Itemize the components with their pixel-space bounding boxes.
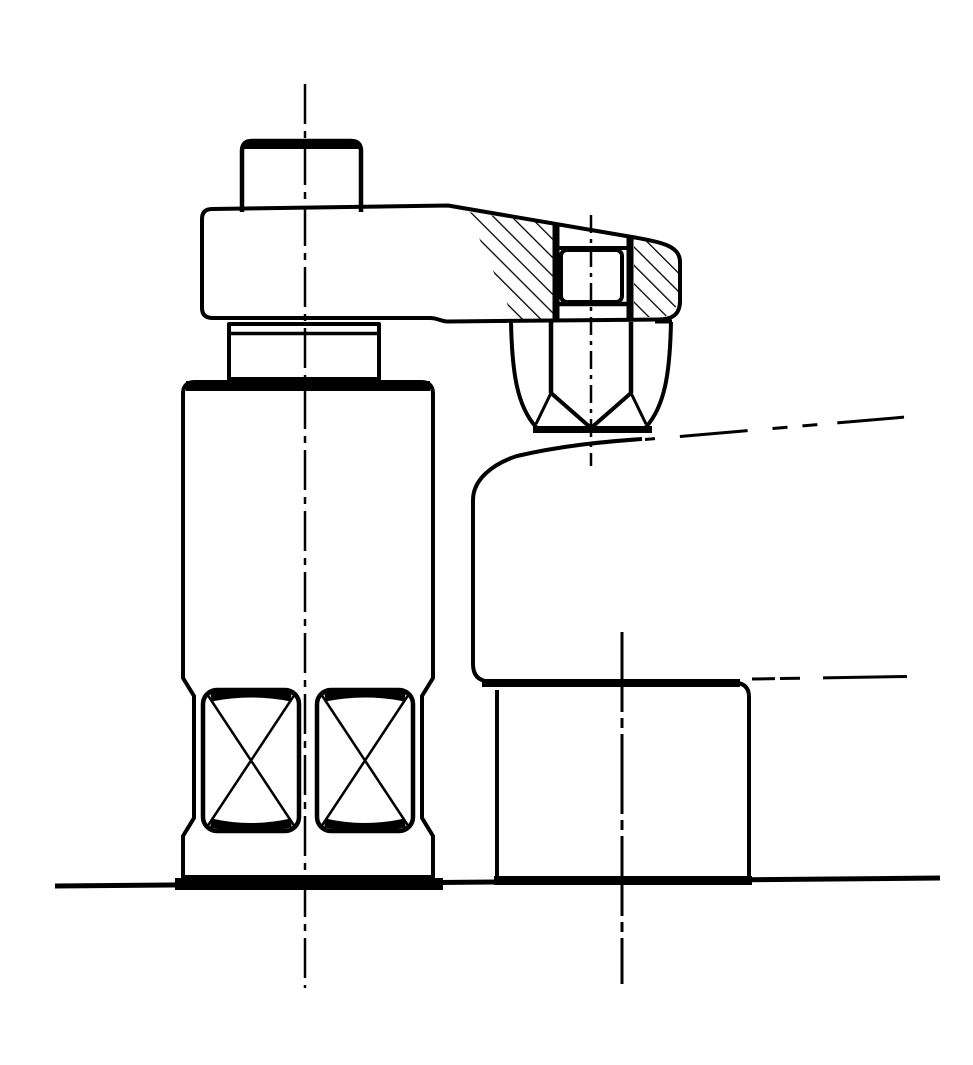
section-hatching-left: [468, 212, 556, 320]
screw-slot: [556, 224, 630, 320]
pressure-nut-chamfer-left: [536, 393, 551, 424]
pressure-nut-chamfer-right: [631, 393, 646, 424]
spring-box-top-band: [211, 693, 291, 697]
spring-element-right: [317, 690, 413, 831]
spring-box-top-band: [325, 693, 405, 697]
table-surface-line: [55, 878, 940, 886]
workpiece-axis-chain-line: [645, 417, 906, 440]
workpiece-top-and-left-edge: [473, 439, 642, 682]
spring-element-left: [203, 690, 299, 831]
center-lines: [305, 84, 908, 988]
clamping-device-drawing: Sectional technical line drawing of a ma…: [0, 0, 973, 1065]
spring-box-bottom-band: [211, 823, 291, 828]
bore-axis-chain-line: [752, 677, 908, 680]
spring-support-cylinder: [183, 382, 433, 877]
clamp-bolt-head: [242, 141, 361, 212]
pressure-nut-left-edge: [511, 322, 536, 427]
spring-box-bottom-band: [325, 823, 405, 828]
clamp-bolt: [242, 141, 361, 212]
technical-drawing-canvas: Sectional technical line drawing of a ma…: [0, 0, 973, 1065]
cylinder-outline: [183, 382, 433, 877]
pressure-nut-right-edge: [646, 322, 671, 427]
workpiece: [473, 439, 749, 876]
workpiece-right-edge: [738, 683, 749, 876]
section-hatching-right: [634, 239, 678, 317]
